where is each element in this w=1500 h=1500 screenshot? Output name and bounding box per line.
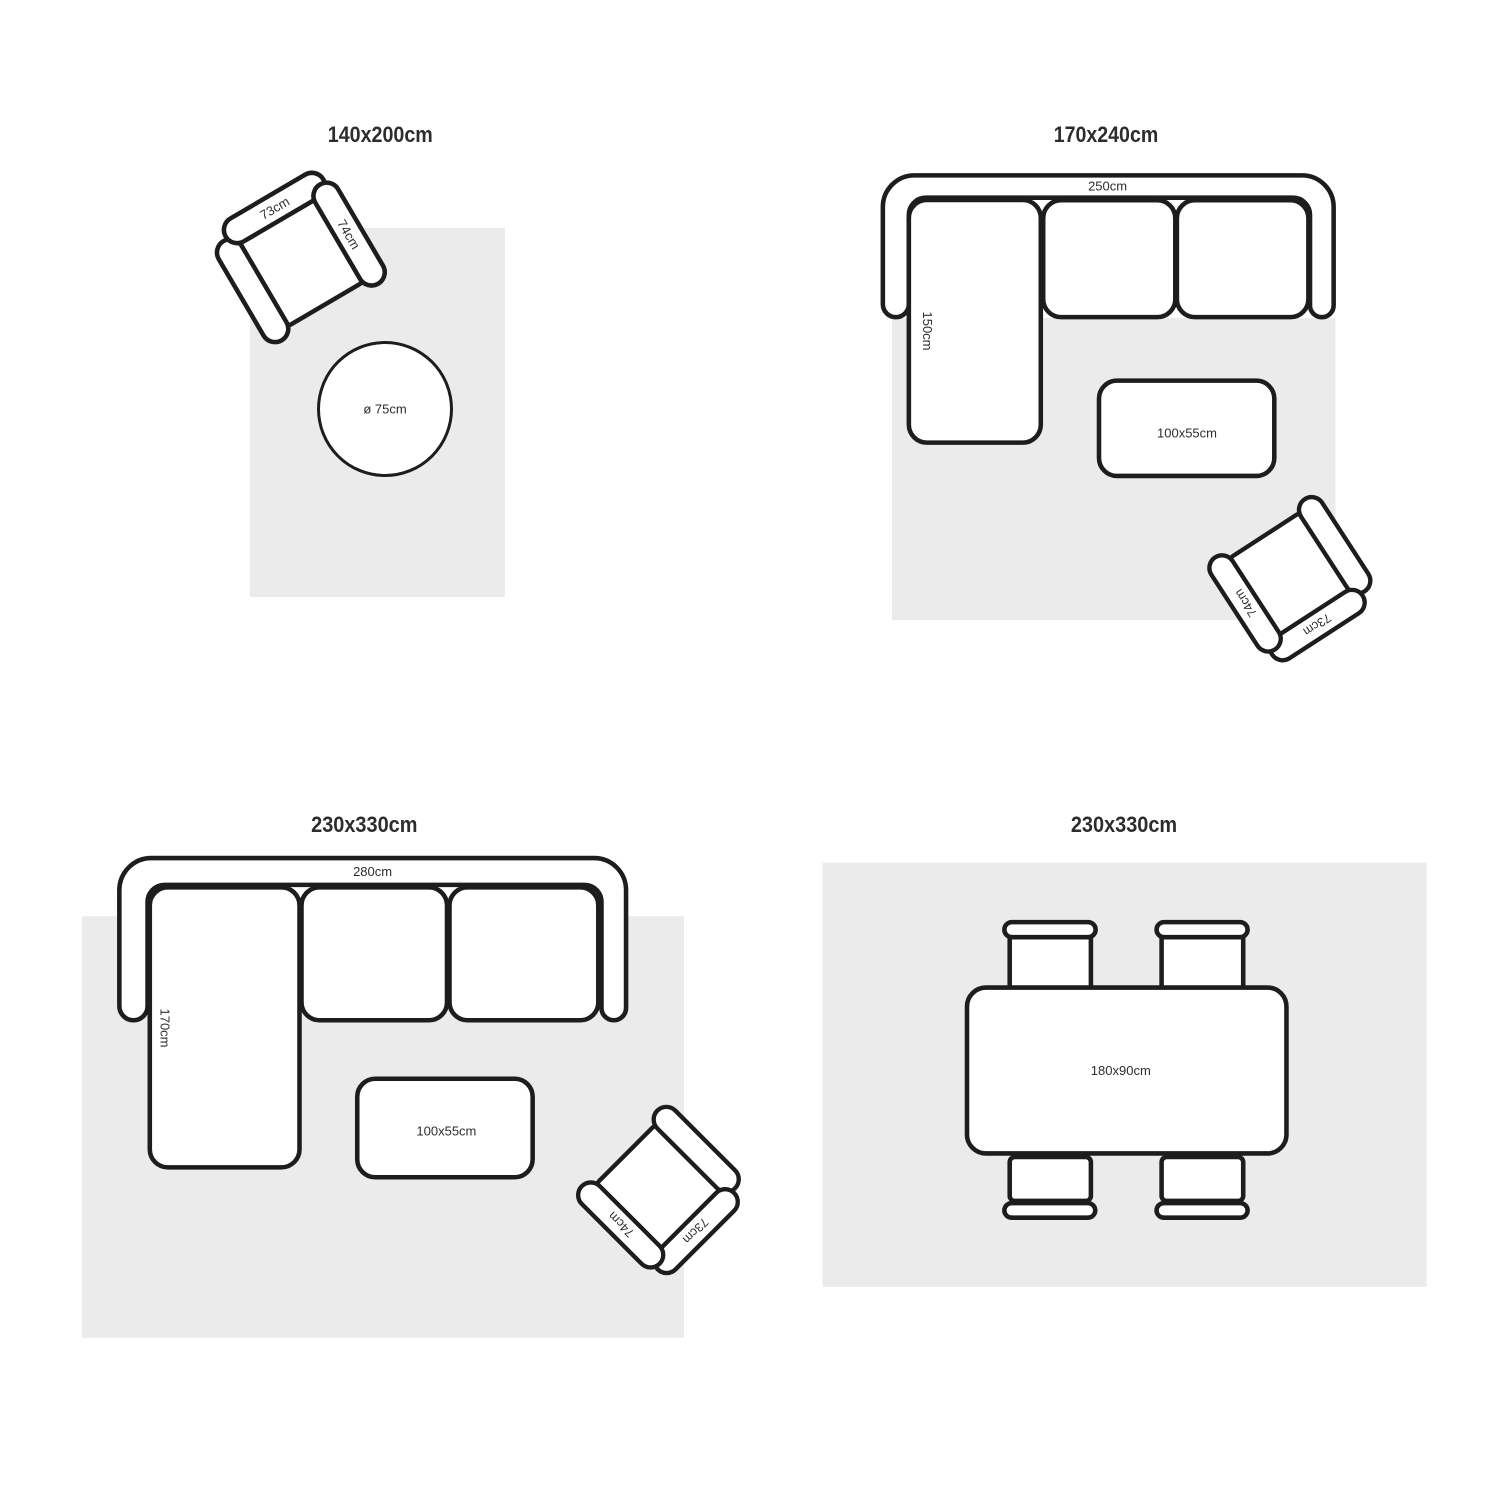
svg-text:170x240cm: 170x240cm (1054, 122, 1159, 147)
svg-text:170cm: 170cm (157, 1008, 172, 1047)
svg-text:100x55cm: 100x55cm (416, 1124, 476, 1139)
svg-text:100x55cm: 100x55cm (1157, 425, 1217, 440)
svg-text:250cm: 250cm (1088, 179, 1127, 194)
svg-text:140x200cm: 140x200cm (328, 122, 433, 147)
svg-text:230x330cm: 230x330cm (311, 812, 417, 837)
svg-text:150cm: 150cm (920, 311, 935, 350)
svg-text:180x90cm: 180x90cm (1091, 1063, 1151, 1078)
svg-text:ø 75cm: ø 75cm (363, 402, 406, 417)
svg-text:280cm: 280cm (353, 864, 392, 879)
svg-text:230x330cm: 230x330cm (1071, 812, 1177, 837)
